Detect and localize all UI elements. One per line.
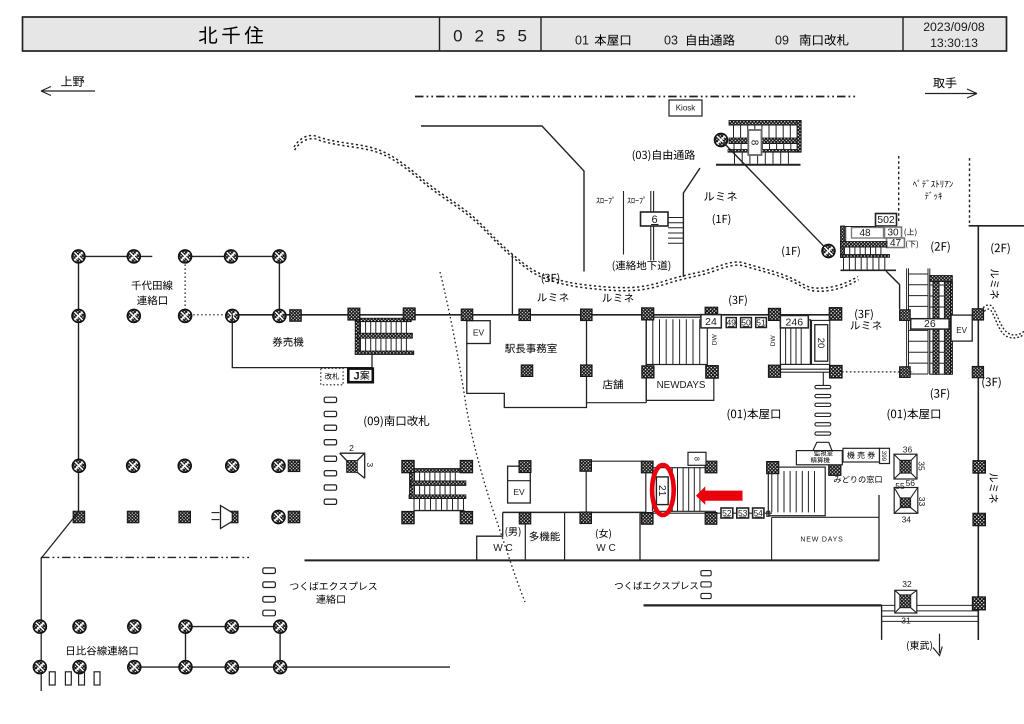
svg-text:33: 33 bbox=[917, 497, 927, 507]
svg-text:W C: W C bbox=[596, 543, 615, 554]
svg-text:47: 47 bbox=[890, 238, 902, 249]
svg-text:13:30:13: 13:30:13 bbox=[930, 36, 978, 50]
svg-text:50: 50 bbox=[741, 318, 751, 328]
svg-text:36: 36 bbox=[903, 445, 913, 455]
svg-text:EV: EV bbox=[513, 487, 525, 497]
svg-text:09: 09 bbox=[775, 33, 789, 47]
svg-text:21: 21 bbox=[656, 485, 667, 497]
svg-text:399: 399 bbox=[880, 450, 887, 461]
svg-text:Kiosk: Kiosk bbox=[676, 104, 697, 113]
svg-text:502: 502 bbox=[877, 214, 895, 226]
svg-text:8: 8 bbox=[748, 140, 759, 146]
svg-text:DW: DW bbox=[711, 333, 718, 345]
svg-text:32: 32 bbox=[902, 579, 912, 589]
svg-text:01: 01 bbox=[575, 33, 589, 47]
svg-text:49: 49 bbox=[726, 318, 736, 328]
svg-text:2023/09/08: 2023/09/08 bbox=[923, 20, 985, 34]
svg-text:20: 20 bbox=[815, 338, 826, 349]
svg-text:30: 30 bbox=[887, 228, 899, 239]
svg-text:NEW DAYS: NEW DAYS bbox=[800, 536, 843, 543]
svg-text:24: 24 bbox=[705, 316, 717, 328]
svg-text:56: 56 bbox=[906, 478, 916, 488]
svg-text:246: 246 bbox=[786, 316, 804, 328]
svg-text:DW: DW bbox=[770, 335, 777, 347]
svg-text:03: 03 bbox=[664, 33, 678, 47]
svg-text:31: 31 bbox=[901, 615, 911, 625]
svg-text:8: 8 bbox=[692, 457, 701, 461]
svg-text:48: 48 bbox=[859, 228, 871, 239]
svg-text:35: 35 bbox=[917, 461, 927, 471]
svg-text:W C: W C bbox=[493, 543, 512, 554]
svg-text:55: 55 bbox=[895, 481, 905, 491]
svg-text:0255: 0255 bbox=[453, 27, 539, 46]
svg-text:2: 2 bbox=[349, 443, 354, 453]
svg-text:EV: EV bbox=[956, 326, 967, 335]
svg-text:26: 26 bbox=[924, 318, 936, 330]
svg-text:NEWDAYS: NEWDAYS bbox=[657, 380, 706, 391]
svg-text:34: 34 bbox=[902, 515, 912, 525]
svg-text:3: 3 bbox=[365, 462, 375, 467]
svg-text:51: 51 bbox=[756, 318, 766, 328]
svg-text:EV: EV bbox=[473, 327, 485, 337]
svg-text:J: J bbox=[353, 371, 359, 383]
